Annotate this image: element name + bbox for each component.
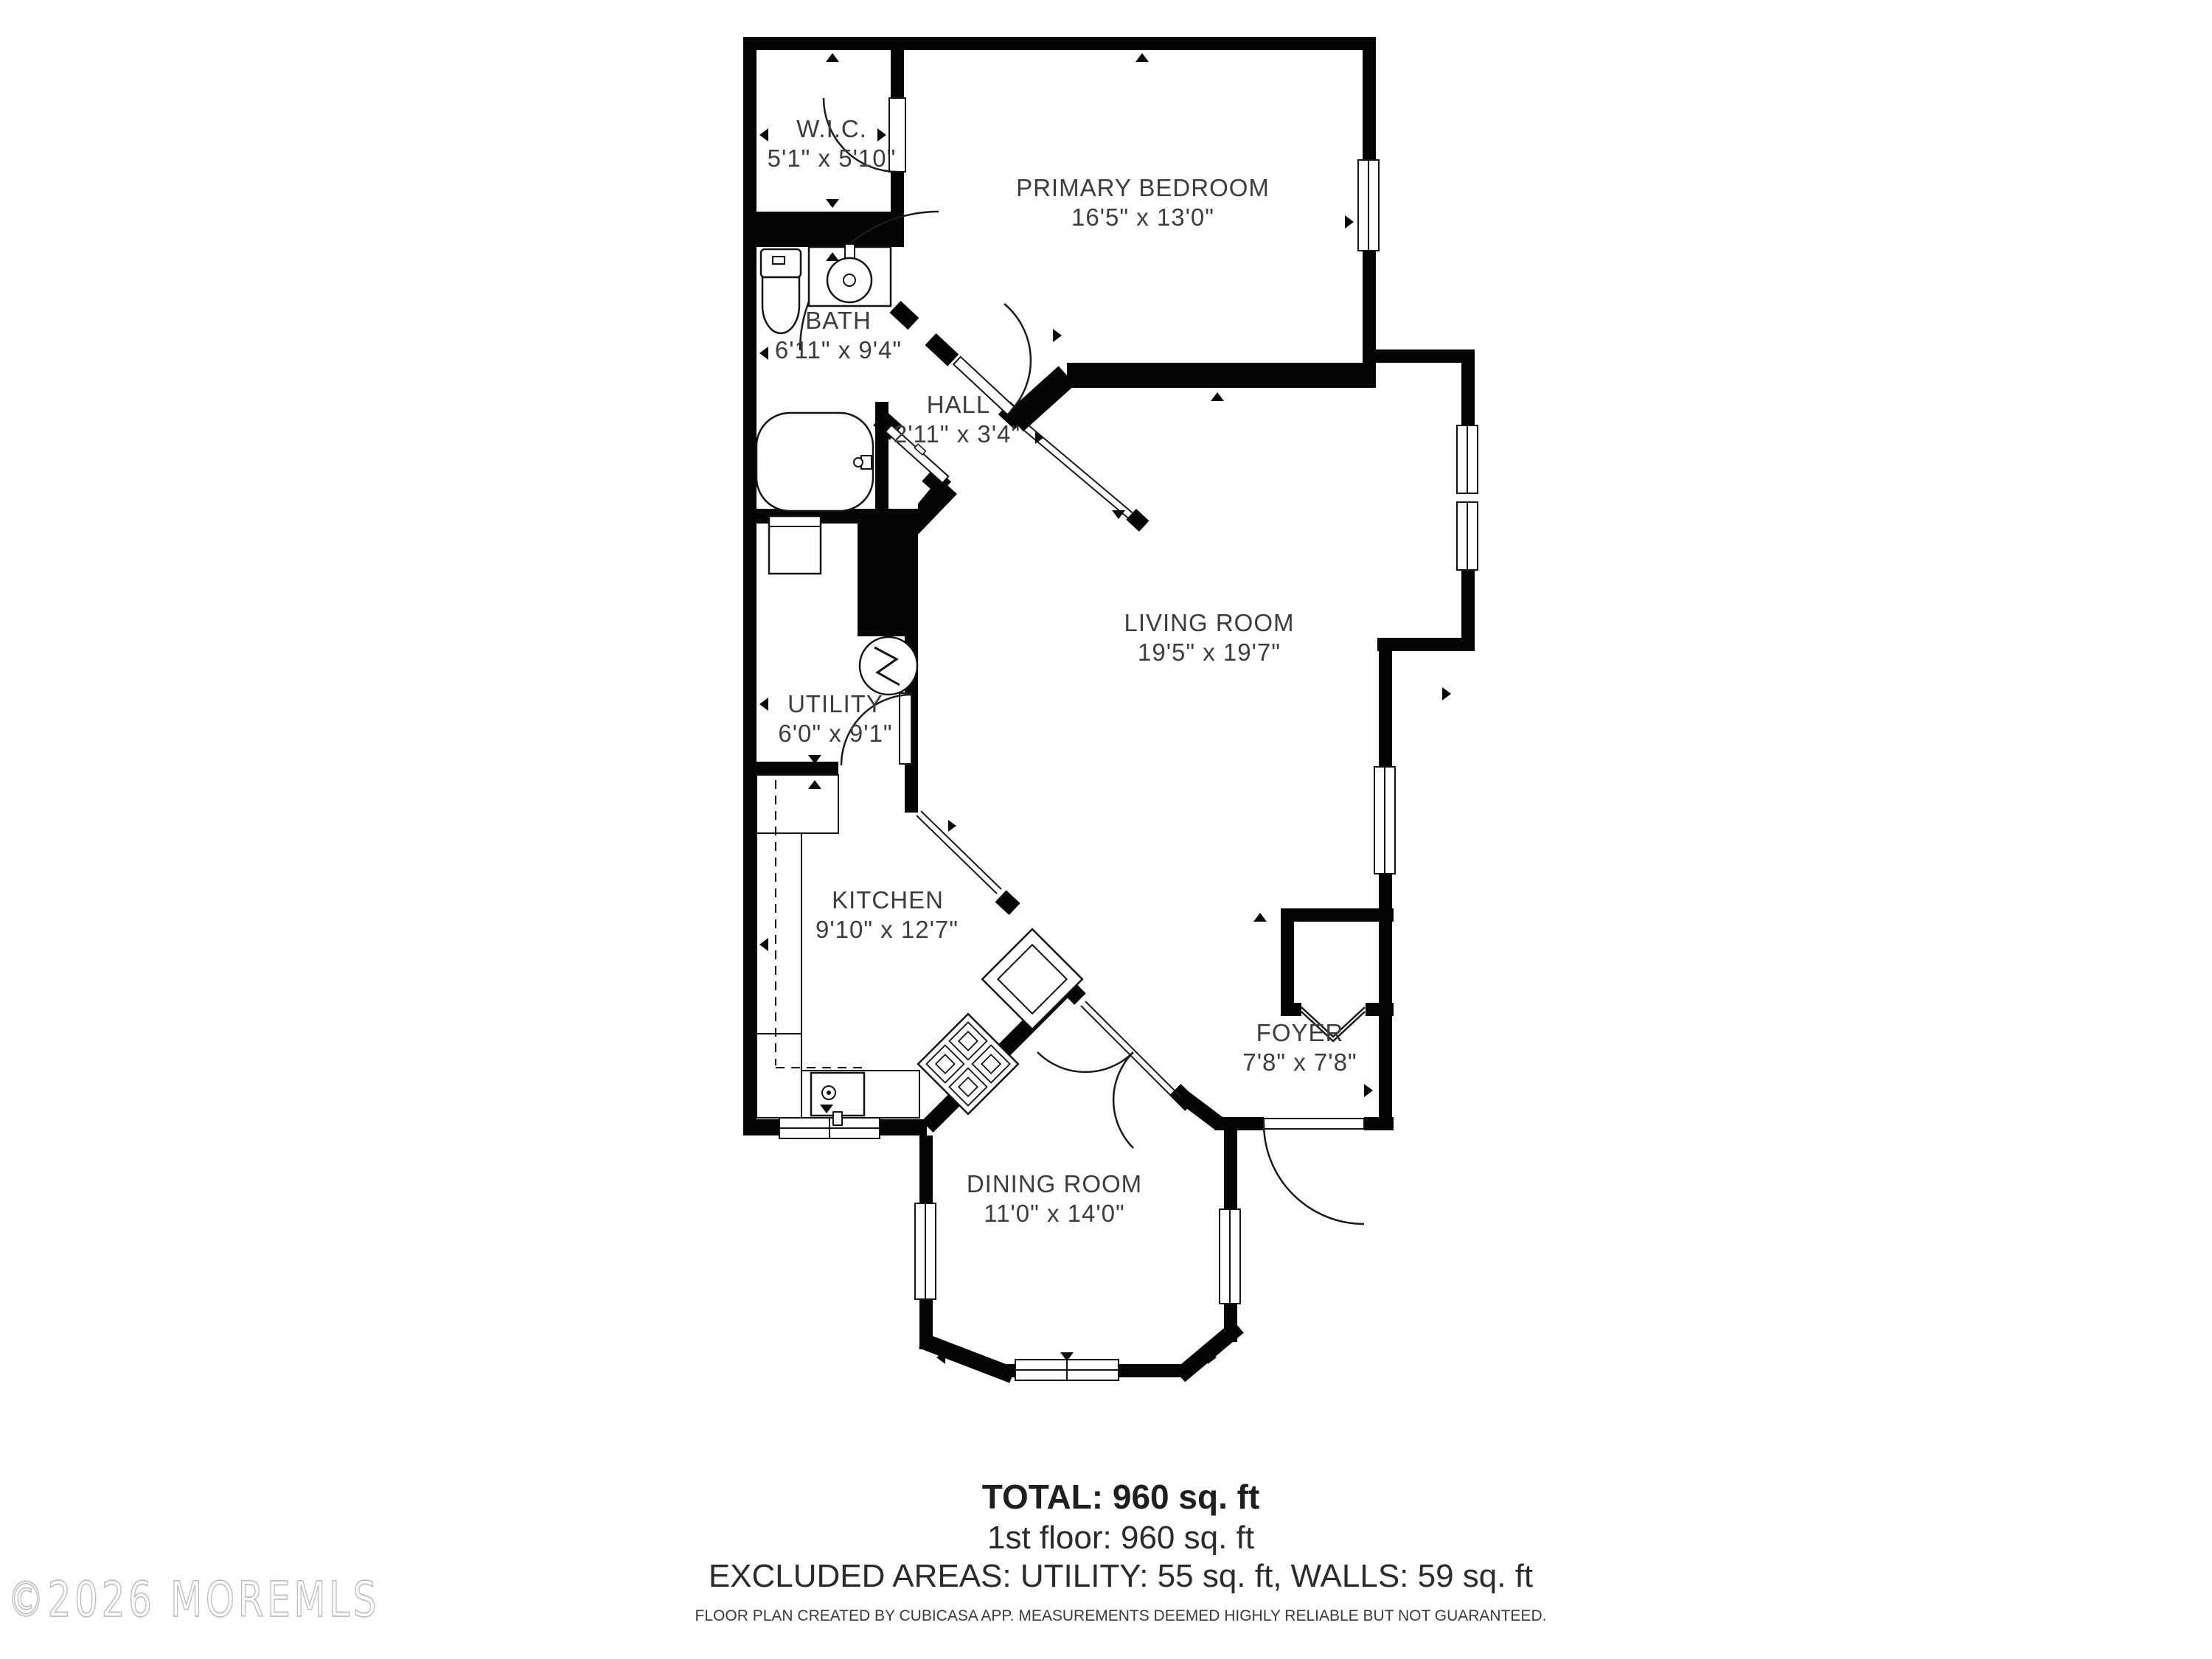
dims-wic: 5'1" x 5'10" <box>768 145 897 172</box>
window-dining-right <box>1220 1209 1240 1304</box>
dims-kitchen: 9'10" x 12'7" <box>815 916 959 943</box>
water-heater <box>860 637 917 695</box>
window-foyer-side <box>1374 767 1395 874</box>
footer-excluded: EXCLUDED AREAS: UTILITY: 55 sq. ft, WALL… <box>709 1558 1533 1594</box>
bathtub <box>757 413 873 511</box>
window-living-2 <box>1457 502 1478 570</box>
stair-void <box>858 509 918 636</box>
label-wic: W.I.C. <box>796 115 867 142</box>
french-door-2 <box>1113 1052 1133 1148</box>
label-bath: BATH <box>805 307 872 334</box>
window-bedroom <box>1358 160 1379 251</box>
dims-bath: 6'11" x 9'4" <box>775 336 902 364</box>
label-kitchen: KITCHEN <box>832 886 944 914</box>
label-utility: UTILITY <box>787 690 883 717</box>
footer-total: TOTAL: 960 sq. ft <box>982 1478 1260 1516</box>
dims-hall: 2'11" x 3'4" <box>894 420 1020 448</box>
french-door-1 <box>1037 1052 1133 1072</box>
floor-plan-canvas: W.I.C. 5'1" x 5'10" PRIMARY BEDROOM 16'5… <box>0 0 2212 1659</box>
refrigerator <box>982 929 1082 1029</box>
washer <box>769 516 821 574</box>
kitchen-counter <box>757 775 919 1118</box>
dims-dining: 11'0" x 14'0" <box>984 1200 1125 1227</box>
mls-watermark: ©2026 MOREMLS <box>7 1571 380 1628</box>
floor-plan-page: W.I.C. 5'1" x 5'10" PRIMARY BEDROOM 16'5… <box>0 0 2212 1659</box>
label-foyer: FOYER <box>1256 1019 1344 1046</box>
window-living-1 <box>1457 425 1478 493</box>
dims-utility: 6'0" x 9'1" <box>778 720 892 747</box>
window-kitchen <box>779 1118 880 1138</box>
window-dining-left <box>915 1203 936 1299</box>
dims-bedroom: 16'5" x 13'0" <box>1071 204 1214 231</box>
bathroom-sink <box>809 244 891 306</box>
entry-door <box>1264 1119 1364 1224</box>
window-dining-bottom <box>1015 1360 1119 1380</box>
fixtures <box>757 244 1082 1125</box>
dims-living: 19'5" x 19'7" <box>1138 639 1281 666</box>
toilet <box>761 249 801 333</box>
label-dining: DINING ROOM <box>967 1170 1142 1197</box>
footer: TOTAL: 960 sq. ft 1st floor: 960 sq. ft … <box>695 1478 1547 1624</box>
label-bedroom: PRIMARY BEDROOM <box>1016 174 1270 201</box>
stove <box>918 1014 1018 1114</box>
footer-floor: 1st floor: 960 sq. ft <box>987 1520 1254 1556</box>
label-living: LIVING ROOM <box>1124 609 1294 636</box>
dims-foyer: 7'8" x 7'8" <box>1242 1048 1357 1076</box>
label-hall: HALL <box>927 391 991 418</box>
footer-disclaimer: FLOOR PLAN CREATED BY CUBICASA APP. MEAS… <box>695 1607 1547 1624</box>
